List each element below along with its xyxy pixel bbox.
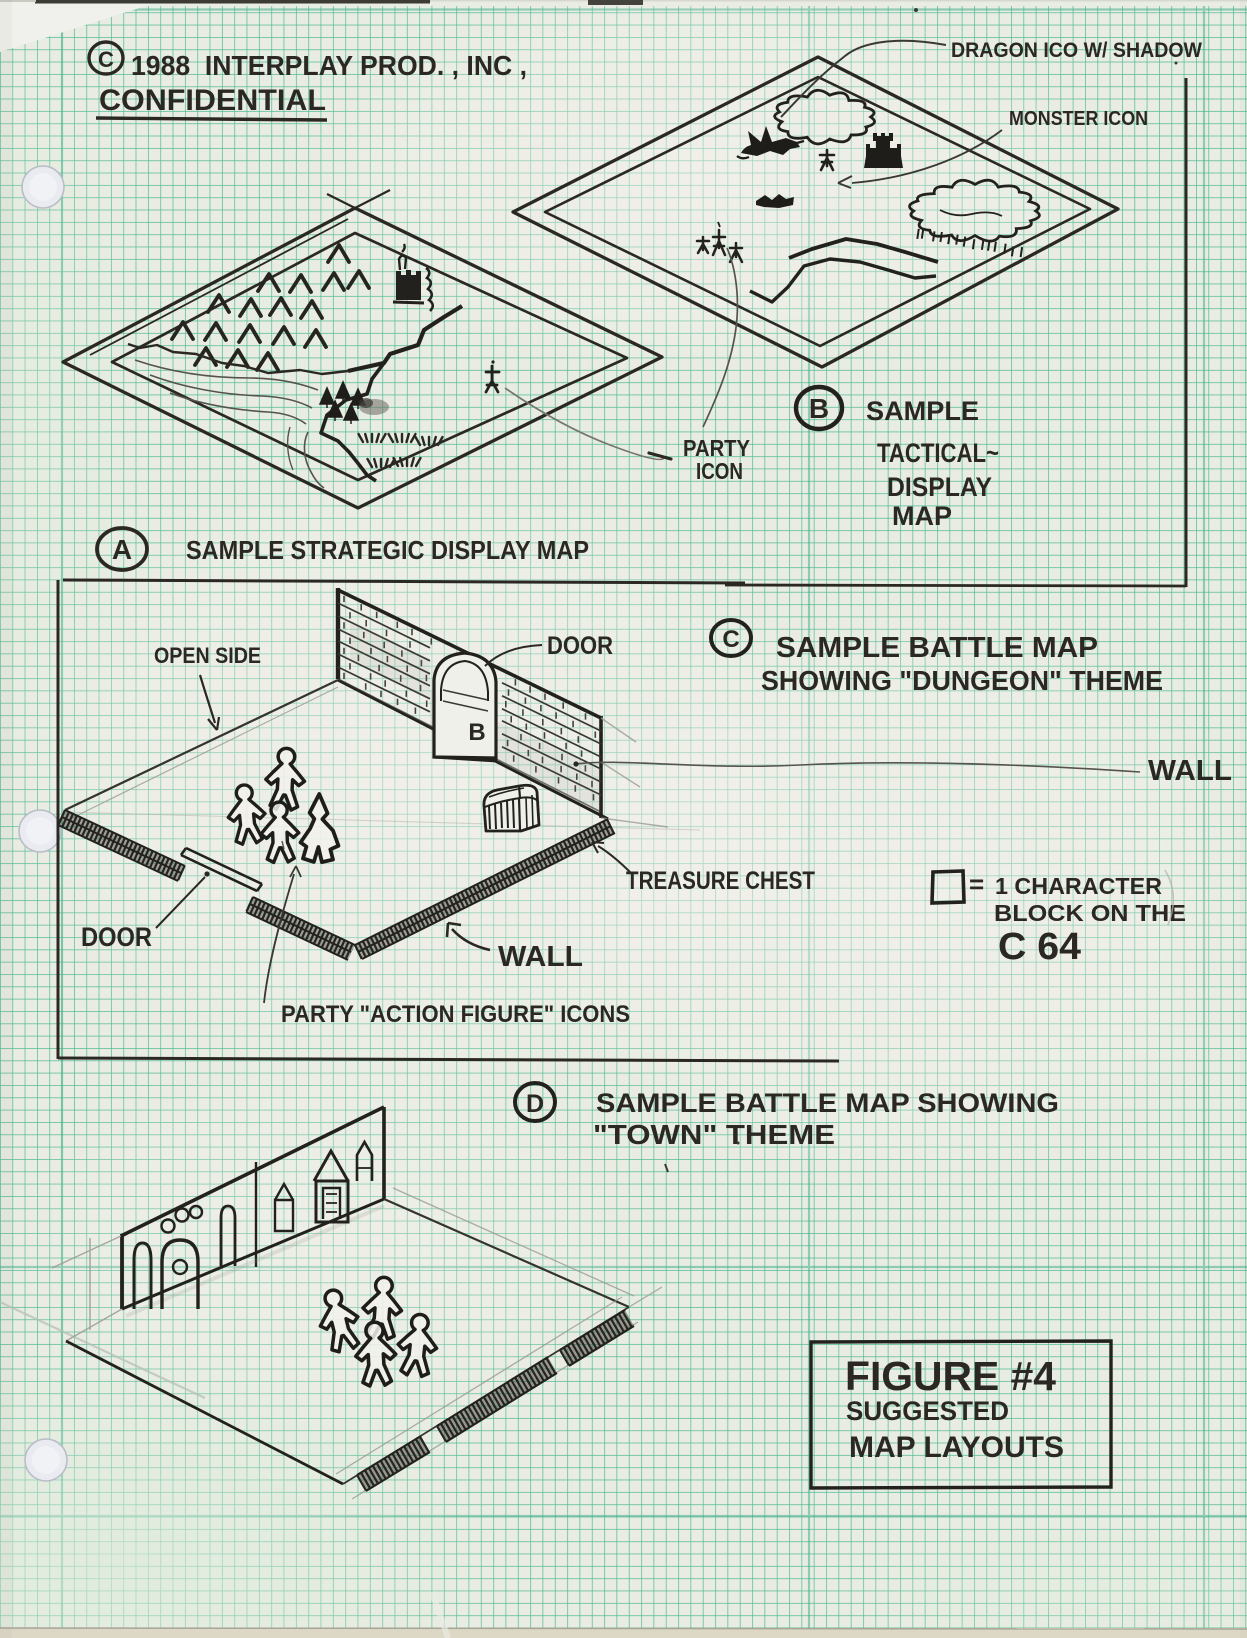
svg-text:1 CHARACTER: 1 CHARACTER bbox=[995, 873, 1162, 899]
svg-text:TREASURE CHEST: TREASURE CHEST bbox=[626, 867, 815, 895]
svg-text:D: D bbox=[526, 1090, 544, 1118]
svg-text:MONSTER ICON: MONSTER ICON bbox=[1009, 107, 1148, 130]
svg-text:WALL: WALL bbox=[498, 941, 583, 973]
svg-text:DRAGON ICO W/ SHADOW: DRAGON ICO W/ SHADOW bbox=[951, 39, 1202, 62]
svg-text:DISPLAY: DISPLAY bbox=[887, 472, 992, 502]
svg-text:WALL: WALL bbox=[1148, 755, 1232, 787]
svg-text:B: B bbox=[809, 393, 829, 424]
svg-text:CONFIDENTIAL: CONFIDENTIAL bbox=[99, 84, 326, 117]
svg-text:SUGGESTED: SUGGESTED bbox=[846, 1396, 1009, 1426]
svg-text:C: C bbox=[722, 626, 739, 653]
svg-text:OPEN SIDE: OPEN SIDE bbox=[154, 643, 261, 668]
svg-text:FIGURE #4: FIGURE #4 bbox=[845, 1353, 1056, 1399]
svg-text:"TOWN" THEME: "TOWN" THEME bbox=[593, 1119, 835, 1150]
svg-text:SAMPLE STRATEGIC DISPLAY MAP: SAMPLE STRATEGIC DISPLAY MAP bbox=[186, 535, 589, 565]
svg-text:SAMPLE BATTLE MAP: SAMPLE BATTLE MAP bbox=[776, 632, 1098, 664]
svg-text:C: C bbox=[98, 47, 114, 72]
svg-text:ICON: ICON bbox=[696, 458, 743, 484]
svg-text:DOOR: DOOR bbox=[81, 922, 152, 952]
svg-text:MAP: MAP bbox=[892, 501, 952, 531]
svg-text:SAMPLE: SAMPLE bbox=[866, 396, 979, 426]
svg-text:MAP LAYOUTS: MAP LAYOUTS bbox=[849, 1431, 1064, 1464]
svg-text:BLOCK ON THE: BLOCK ON THE bbox=[994, 900, 1186, 926]
svg-text:TACTICAL~: TACTICAL~ bbox=[877, 438, 999, 468]
svg-text:C 64: C 64 bbox=[998, 926, 1081, 968]
svg-text:SAMPLE BATTLE MAP SHOWING: SAMPLE BATTLE MAP SHOWING bbox=[596, 1088, 1059, 1118]
svg-text:SHOWING "DUNGEON" THEME: SHOWING "DUNGEON" THEME bbox=[761, 665, 1163, 696]
svg-text:=: = bbox=[969, 869, 984, 899]
svg-text:1988 INTERPLAY PROD. , INC ,: 1988 INTERPLAY PROD. , INC , bbox=[131, 50, 527, 81]
svg-text:A: A bbox=[112, 534, 132, 565]
svg-text:B: B bbox=[468, 719, 485, 746]
svg-text:DOOR: DOOR bbox=[547, 632, 613, 660]
svg-text:PARTY "ACTION FIGURE" ICONS: PARTY "ACTION FIGURE" ICONS bbox=[281, 1001, 630, 1028]
